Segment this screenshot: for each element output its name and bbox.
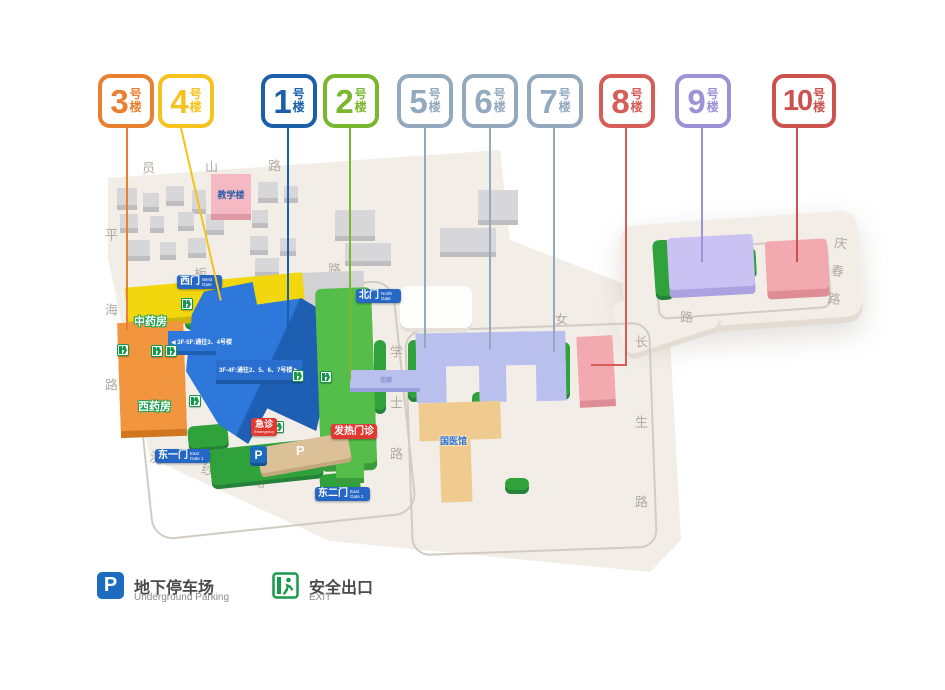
gate-west-label: 西门 — [180, 277, 200, 287]
city-block — [178, 212, 194, 226]
exit-icon — [151, 345, 163, 357]
parking-icon-map: P — [250, 446, 267, 463]
gate-north-sublabel: North Gate — [381, 291, 398, 301]
gate-east2-badge: 东二门 East Gate 2 — [315, 487, 370, 501]
legend-parking-sublabel: Underground Parking — [134, 592, 229, 603]
building-no8 — [576, 335, 615, 401]
leader-line-5 — [424, 128, 426, 348]
guoyiguan-label: 国医馆 — [440, 434, 467, 447]
badge-suffix-lou: 楼 — [293, 101, 305, 114]
exit-icon — [292, 370, 304, 382]
building-badge-4[interactable]: 4 号楼 — [158, 74, 214, 128]
leader-line-2 — [349, 128, 351, 380]
city-block — [166, 186, 184, 201]
fever-clinic-label: 发热门诊 — [334, 426, 374, 437]
leader-line-6 — [489, 128, 491, 350]
parking-letter-ramp: P — [296, 443, 305, 458]
badge-number: 7 — [539, 85, 556, 118]
badge-suffix-lou: 楼 — [631, 101, 643, 114]
badge-suffix-lou: 楼 — [559, 101, 571, 114]
gate-east1-sublabel: East Gate 1 — [190, 451, 207, 461]
badge-number: 9 — [687, 85, 704, 118]
badge-number: 6 — [474, 85, 491, 118]
leader-line-1 — [287, 128, 289, 343]
building-badge-6[interactable]: 6 号楼 — [462, 74, 518, 128]
badge-number: 3 — [110, 85, 127, 118]
building-badge-1[interactable]: 1 号楼 — [261, 74, 317, 128]
teaching-building-label: 教学楼 — [217, 188, 244, 201]
city-block — [120, 214, 138, 228]
exit-icon — [320, 371, 332, 383]
legend-parking-glyph: P — [104, 574, 117, 597]
city-block — [478, 190, 518, 220]
bridge-b-label: 3F-4F:通往2、5、6、7号楼 ▶ — [219, 365, 299, 374]
building-badge-10[interactable]: 10 号楼 — [772, 74, 836, 128]
pharmacy-west-label: 西药房 — [138, 398, 171, 414]
leader-line-7 — [553, 128, 555, 352]
gate-north-badge: 北门 North Gate — [356, 289, 401, 303]
building-badge-7[interactable]: 7 号楼 — [527, 74, 583, 128]
emergency-sublabel: Emergency — [254, 430, 274, 434]
building-teaching: 教学楼 — [211, 174, 251, 214]
leader-line-9 — [701, 128, 703, 262]
badge-number: 4 — [170, 85, 187, 118]
exit-icon — [165, 345, 177, 357]
badge-suffix-lou: 楼 — [190, 101, 202, 114]
badge-suffix-lou: 楼 — [355, 101, 367, 114]
badge-suffix-lou: 楼 — [707, 101, 719, 114]
city-block — [188, 238, 206, 253]
pharmacy-cn-label: 中药房 — [134, 313, 167, 329]
badge-suffix-lou: 楼 — [813, 101, 825, 114]
exit-icon — [189, 395, 201, 407]
fever-clinic-badge: 发热门诊 — [331, 424, 377, 439]
parking-letter: P — [254, 448, 262, 462]
badge-suffix-lou: 楼 — [130, 101, 142, 114]
leader-line-3 — [126, 128, 128, 330]
badge-number: 1 — [273, 85, 290, 118]
gate-east1-badge: 东一门 East Gate 1 — [155, 449, 210, 463]
badge-number: 5 — [409, 85, 426, 118]
gate-east2-sublabel: East Gate 2 — [350, 489, 367, 499]
exit-icon — [117, 344, 129, 356]
city-block — [143, 193, 159, 207]
bridge-a-label: ◀ 3F-5F:通往3、4号楼 — [171, 337, 232, 346]
green-area — [505, 478, 529, 490]
city-block — [258, 182, 278, 198]
leader-line-8 — [625, 128, 627, 366]
badge-number: 8 — [611, 85, 628, 118]
building-badge-8[interactable]: 8 号楼 — [599, 74, 655, 128]
building-badge-5[interactable]: 5 号楼 — [397, 74, 453, 128]
emergency-badge: 急诊 Emergency — [251, 418, 277, 436]
building-no9 — [667, 234, 756, 290]
building-badge-3[interactable]: 3 号楼 — [98, 74, 154, 128]
legend-exit-sublabel: EXIT — [309, 592, 331, 603]
leader-line-10 — [796, 128, 798, 262]
badge-suffix-lou: 楼 — [429, 101, 441, 114]
building-no2-annex — [336, 458, 364, 478]
leader-line-8-elbow — [591, 364, 627, 366]
gate-east2-label: 东二门 — [318, 489, 348, 499]
campus-map: 员山路 平海路 板桥路 孝女路 学士路 长生路 庆春路 浣纱路 教学楼 — [0, 0, 945, 690]
gate-east1-label: 东一门 — [158, 451, 188, 461]
city-block — [345, 243, 391, 261]
corridor-label: 连廊 — [380, 375, 392, 384]
legend-parking-icon: P — [97, 572, 124, 599]
badge-number: 10 — [783, 87, 811, 116]
city-block — [440, 228, 496, 252]
exit-icon — [181, 298, 193, 310]
city-block — [150, 216, 164, 228]
road-label-changsheng: 长生路 — [631, 335, 650, 575]
badge-suffix-lou: 楼 — [494, 101, 506, 114]
gate-north-label: 北门 — [359, 291, 379, 301]
road-label-xueshi: 学士路 — [386, 345, 405, 498]
city-block — [255, 258, 279, 272]
city-block — [335, 210, 375, 236]
city-block — [252, 210, 268, 223]
building-badge-2[interactable]: 2 号楼 — [323, 74, 379, 128]
city-block — [250, 236, 268, 250]
badge-number: 2 — [335, 85, 352, 118]
building-badge-9[interactable]: 9 号楼 — [675, 74, 731, 128]
legend-exit-icon — [272, 572, 299, 604]
building-white — [400, 286, 472, 328]
city-block — [160, 242, 176, 255]
building-no567 — [415, 331, 566, 404]
city-block — [206, 214, 224, 230]
city-block — [128, 240, 150, 256]
